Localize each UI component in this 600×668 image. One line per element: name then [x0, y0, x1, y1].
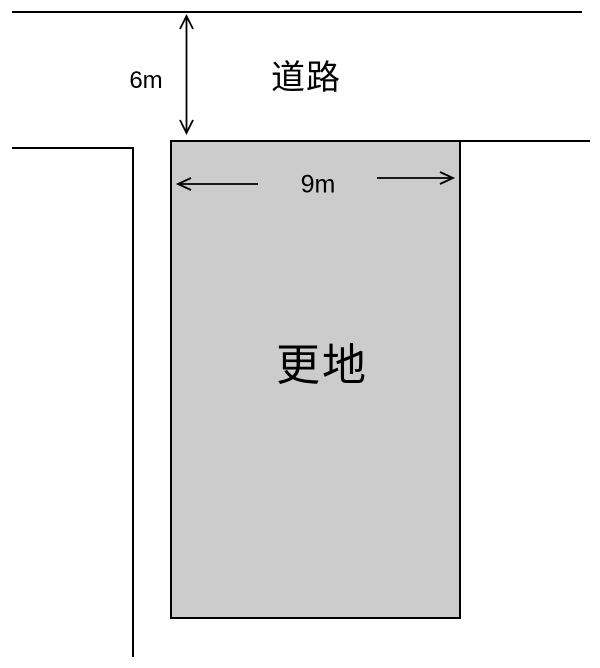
road-label: 道路 [271, 61, 341, 95]
vacant-lot-label: 更地 [276, 344, 368, 388]
land-plot-diagram: 6m 道路 9m 更地 [0, 0, 600, 668]
diagram-drawing [0, 0, 600, 668]
left-neighbor-boundary-line [12, 148, 133, 657]
plot-frontage-label: 9m [301, 173, 336, 198]
road-width-arrow [180, 16, 193, 133]
road-width-label: 6m [129, 69, 162, 93]
